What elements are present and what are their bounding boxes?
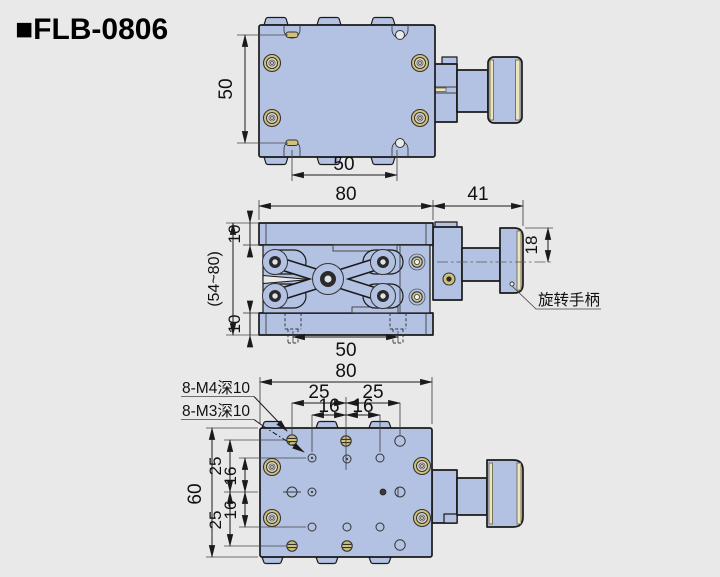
hole [376,523,384,531]
dim-plate-top: 10 [225,225,244,244]
tab [317,18,341,26]
handle-shaft [462,248,500,281]
tab [262,557,283,564]
slotted-screw [287,541,297,551]
dim-h16-right: 16 [352,396,373,417]
handle-label: 旋转手柄 [538,291,600,309]
hole [308,523,316,531]
tab [371,18,395,26]
tab [264,157,288,165]
socket-screw [414,510,431,527]
slotted-screw [342,541,352,551]
pivot [263,284,288,309]
knob-highlight [489,463,493,524]
socket-screw [264,510,281,527]
hole [395,436,405,446]
handle-shaft [457,478,487,515]
knob-highlight [490,60,494,120]
tab [371,157,395,165]
center-pivot [313,264,344,295]
dim-side-handle: 41 [467,184,488,205]
socket-screw [264,55,281,72]
dim-top-vertical-50: 50 [216,78,237,99]
socket-screw [412,55,429,72]
tab [316,557,338,564]
tab [369,557,391,564]
corner-hole [396,31,405,40]
page-title: ■FLB-0806 [15,13,168,46]
slotted-screw [287,435,297,445]
dim-bottom-height: 60 [185,483,206,504]
hole [395,487,405,497]
moving-plate [259,223,433,245]
m4-label: 8-M4深10 [182,379,250,397]
m3-label: 8-M3深10 [182,402,250,420]
leader-dot [510,282,514,286]
dim-side-width: 80 [335,184,356,205]
dim-bottom-width: 80 [335,361,356,382]
handle-bracket [433,227,462,300]
dim-v16-top: 16 [221,467,240,486]
dim-screw-spacing: 50 [335,340,356,361]
socket-screw [414,458,431,475]
dim-handle-dia: 18 [522,236,541,255]
tab [316,422,338,429]
handle-shaft [457,70,488,112]
top-plate [259,25,435,157]
dim-h16-left: 16 [318,396,339,417]
pin-hole [380,489,386,495]
side-port [409,289,425,305]
socket-screw [264,459,281,476]
dim-height-range: (54~80) [206,251,223,307]
pivot [371,284,396,309]
knob-highlight [517,231,521,290]
drawing-page: ■FLB-0806 [0,0,720,577]
hole [343,523,351,531]
hole [395,540,405,550]
knob-highlight [516,60,521,120]
side-view: 80 41 10 10 (54~80) 50 18 旋转手柄 [206,184,601,361]
top-view: 50 50 [216,18,522,182]
handle-block-notch [444,514,457,523]
corner-hole [396,139,405,148]
hole [376,454,384,462]
tab [264,18,288,26]
knob-highlight [517,463,521,524]
socket-screw [264,110,281,127]
dim-top-horizontal-50: 50 [333,154,354,175]
dim-v25-bottom: 25 [206,511,225,530]
dim-plate-bottom: 10 [225,315,244,334]
side-port [409,254,425,270]
technical-drawing: ■FLB-0806 [0,0,720,577]
pivot [263,250,288,275]
bottom-view: 80 25 25 16 16 60 25 16 16 25 [181,361,523,564]
socket-screw [412,110,429,127]
pivot [371,250,396,275]
